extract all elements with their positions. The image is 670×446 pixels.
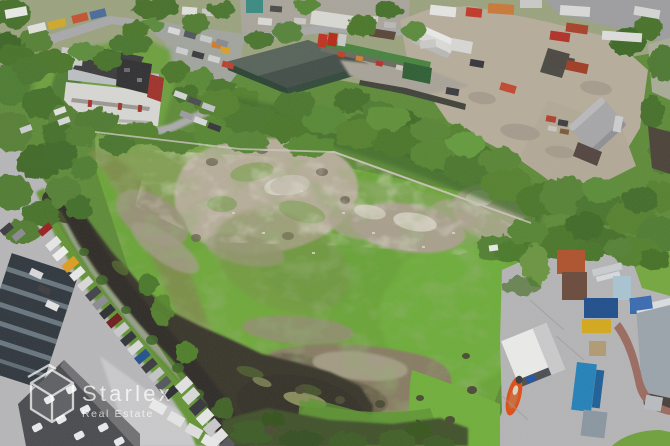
svg-text:Real Estate: Real Estate	[82, 408, 154, 420]
svg-text:Starlex: Starlex	[82, 381, 173, 406]
